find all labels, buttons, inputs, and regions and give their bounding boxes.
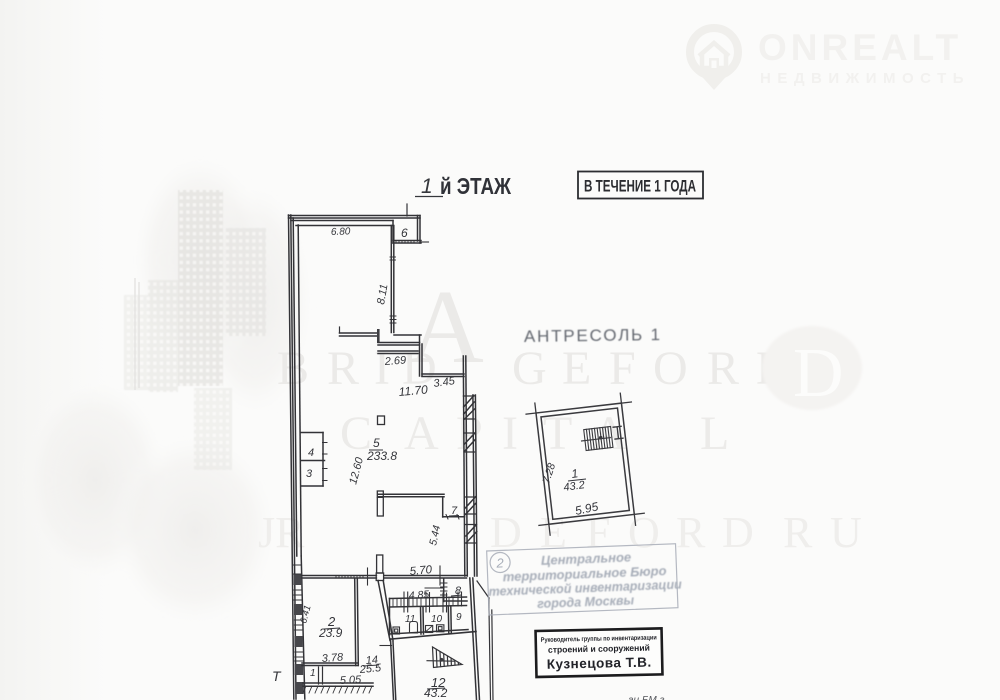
svg-text:R: R xyxy=(327,342,359,395)
svg-text:1: 1 xyxy=(310,668,316,679)
svg-text:4: 4 xyxy=(308,447,314,459)
svg-text:й ЭТАЖ: й ЭТАЖ xyxy=(440,173,511,199)
svg-text:ONREALT: ONREALT xyxy=(758,27,962,68)
svg-text:10: 10 xyxy=(431,614,443,625)
svg-text:2.69: 2.69 xyxy=(383,355,406,369)
svg-text:3.78: 3.78 xyxy=(321,651,344,665)
svg-text:Т: Т xyxy=(272,668,282,684)
svg-text:E: E xyxy=(562,342,591,395)
svg-text:U: U xyxy=(830,508,862,557)
svg-text:аи БМ г: аи БМ г xyxy=(628,695,665,700)
svg-text:R: R xyxy=(707,342,739,395)
svg-text:1: 1 xyxy=(421,175,433,198)
svg-text:E: E xyxy=(540,508,567,557)
svg-text:3: 3 xyxy=(306,468,313,480)
svg-text:I: I xyxy=(374,342,390,395)
svg-text:6: 6 xyxy=(401,226,408,240)
svg-text:JR: JR xyxy=(258,508,305,557)
svg-text:G: G xyxy=(512,342,547,395)
svg-text:D: D xyxy=(793,335,844,412)
svg-text:43.2: 43.2 xyxy=(424,686,448,700)
svg-text:2: 2 xyxy=(495,555,505,570)
svg-text:5.70: 5.70 xyxy=(409,564,433,578)
svg-text:11.70: 11.70 xyxy=(398,382,429,399)
svg-text:АНТРЕСОЛЬ 1: АНТРЕСОЛЬ 1 xyxy=(524,325,662,346)
svg-text:НЕДВИЖИМОСТЬ: НЕДВИЖИМОСТЬ xyxy=(760,70,970,87)
svg-text:строений и сооружений: строений и сооружений xyxy=(548,643,650,655)
svg-text:A: A xyxy=(404,407,439,460)
svg-text:D: D xyxy=(722,508,754,557)
svg-text:R: R xyxy=(676,508,706,557)
svg-text:5: 5 xyxy=(373,436,380,450)
svg-text:25.5: 25.5 xyxy=(358,662,382,676)
svg-text:23.9: 23.9 xyxy=(318,626,343,640)
svg-text:5.05: 5.05 xyxy=(340,674,363,687)
svg-text:4.85: 4.85 xyxy=(408,589,429,602)
svg-text:В ТЕЧЕНИЕ 1 ГОДА: В ТЕЧЕНИЕ 1 ГОДА xyxy=(584,178,696,196)
svg-text:I: I xyxy=(502,407,518,460)
svg-text:R: R xyxy=(783,508,813,557)
svg-text:9: 9 xyxy=(456,612,462,623)
svg-text:F: F xyxy=(609,342,636,395)
svg-text:Кузнецова Т.В.: Кузнецова Т.В. xyxy=(547,655,652,672)
svg-text:L: L xyxy=(700,407,729,460)
svg-text:11: 11 xyxy=(405,614,415,625)
svg-text:233.8: 233.8 xyxy=(366,449,397,463)
svg-text:6.80: 6.80 xyxy=(331,226,351,238)
svg-text:O: O xyxy=(653,342,688,395)
svg-text:O: O xyxy=(628,508,660,557)
